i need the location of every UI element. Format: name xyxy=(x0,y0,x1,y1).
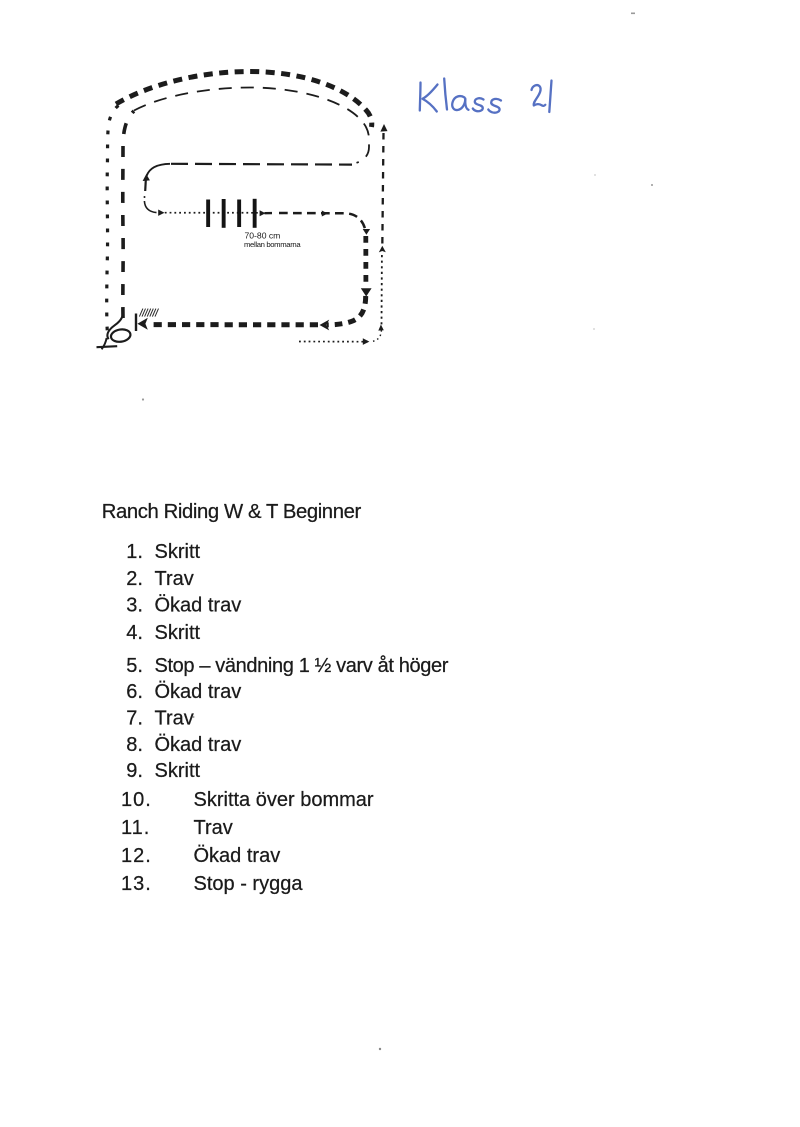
svg-text:5.: 5. xyxy=(126,655,143,677)
svg-text:Trav: Trav xyxy=(194,817,233,839)
svg-text:Stop - rygga: Stop - rygga xyxy=(194,873,304,895)
svg-text:Ökad trav: Ökad trav xyxy=(155,734,242,756)
svg-text:6.: 6. xyxy=(126,681,143,703)
svg-text:Skritt: Skritt xyxy=(155,541,201,563)
svg-text:Ökad trav: Ökad trav xyxy=(155,595,242,617)
svg-text:9.: 9. xyxy=(126,760,143,782)
svg-text:Ranch Riding W & T Beginner: Ranch Riding W & T Beginner xyxy=(102,501,362,523)
svg-text:2.: 2. xyxy=(126,568,143,590)
svg-text:8.: 8. xyxy=(126,734,143,756)
svg-text:4.: 4. xyxy=(126,622,143,644)
svg-text:10.: 10. xyxy=(121,789,152,811)
svg-text:Trav: Trav xyxy=(155,708,194,730)
svg-text:Ökad trav: Ökad trav xyxy=(194,845,281,867)
svg-text:11.: 11. xyxy=(121,817,150,839)
svg-text:Skritt: Skritt xyxy=(155,760,201,782)
svg-text:3.: 3. xyxy=(126,595,143,617)
svg-text:Stop – vändning 1 ½ varv åt hö: Stop – vändning 1 ½ varv åt höger xyxy=(155,655,449,677)
svg-text:Skritta över bommar: Skritta över bommar xyxy=(194,789,374,811)
svg-text:12.: 12. xyxy=(121,845,152,867)
svg-text:1.: 1. xyxy=(126,541,143,563)
svg-text:mellan bommarna: mellan bommarna xyxy=(244,240,301,249)
svg-text:7.: 7. xyxy=(126,708,143,730)
svg-text:Trav: Trav xyxy=(155,568,194,590)
svg-text:13.: 13. xyxy=(121,873,152,895)
svg-text:Ökad trav: Ökad trav xyxy=(155,681,242,703)
svg-text:Skritt: Skritt xyxy=(155,622,201,644)
